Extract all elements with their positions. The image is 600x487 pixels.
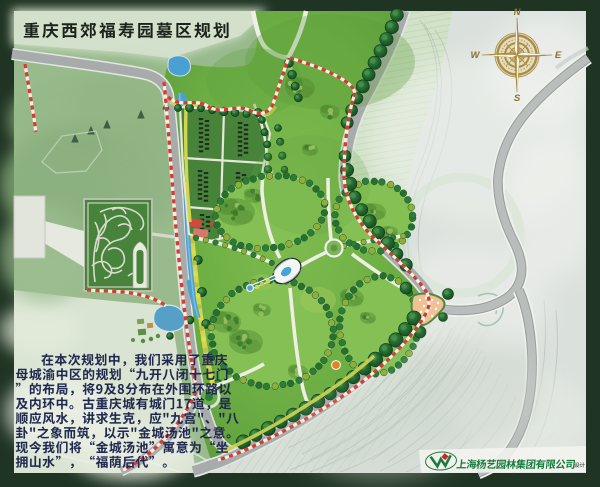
svg-text:E: E (555, 50, 562, 61)
svg-text:S: S (514, 93, 521, 104)
svg-text:W: W (471, 50, 481, 61)
svg-text:N: N (514, 7, 522, 18)
